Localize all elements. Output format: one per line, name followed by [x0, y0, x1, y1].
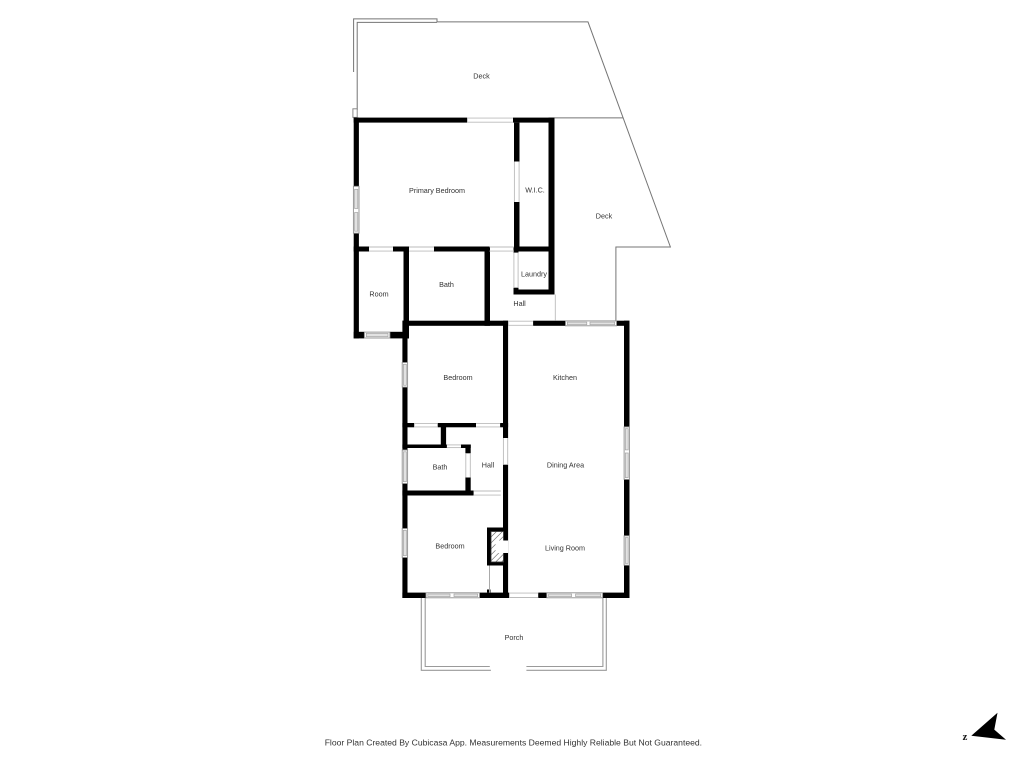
- svg-text:W.I.C.: W.I.C.: [525, 186, 545, 195]
- svg-text:Kitchen: Kitchen: [553, 373, 577, 382]
- svg-text:Deck: Deck: [473, 72, 490, 81]
- svg-text:Hall: Hall: [482, 461, 495, 470]
- svg-text:Room: Room: [369, 290, 388, 299]
- svg-text:Bedroom: Bedroom: [443, 373, 472, 382]
- svg-text:z: z: [963, 731, 968, 743]
- svg-text:Hall: Hall: [513, 299, 526, 308]
- svg-text:Bedroom: Bedroom: [435, 542, 464, 551]
- svg-text:Living Room: Living Room: [545, 544, 585, 553]
- svg-text:Laundry: Laundry: [521, 270, 547, 279]
- svg-text:Bath: Bath: [433, 463, 448, 472]
- svg-text:Deck: Deck: [596, 212, 613, 221]
- svg-text:Dining Area: Dining Area: [547, 461, 584, 470]
- svg-text:Bath: Bath: [439, 280, 454, 289]
- svg-text:Floor Plan Created By Cubicasa: Floor Plan Created By Cubicasa App. Meas…: [325, 737, 702, 747]
- svg-text:Primary Bedroom: Primary Bedroom: [409, 186, 465, 195]
- svg-text:Porch: Porch: [505, 633, 524, 642]
